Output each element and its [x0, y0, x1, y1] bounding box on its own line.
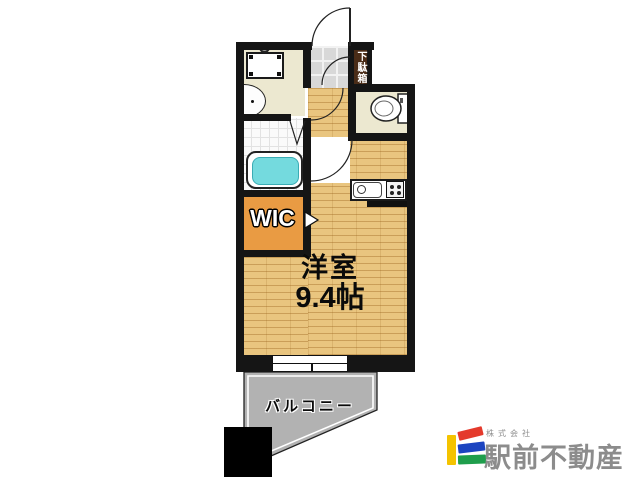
- room-label-group: 洋室 9.4帖: [265, 255, 395, 313]
- company-name: 駅前不動産: [484, 436, 624, 475]
- wic-label: WIC: [242, 205, 303, 232]
- balcony-label: バルコニー: [246, 395, 374, 416]
- logo-green-bar: [458, 455, 486, 465]
- floor-plan-page: 洋室 9.4帖 WIC 下駄箱 バルコニー 株式会社 駅前不動産: [0, 0, 640, 480]
- black-square-mark: [224, 427, 272, 477]
- shoe-cabinet-label: 下駄箱: [353, 46, 368, 88]
- logo-yellow-bar: [447, 435, 456, 465]
- wic-door-marker: [305, 212, 318, 228]
- room-name: 洋室: [265, 255, 395, 282]
- room-size: 9.4帖: [265, 284, 395, 313]
